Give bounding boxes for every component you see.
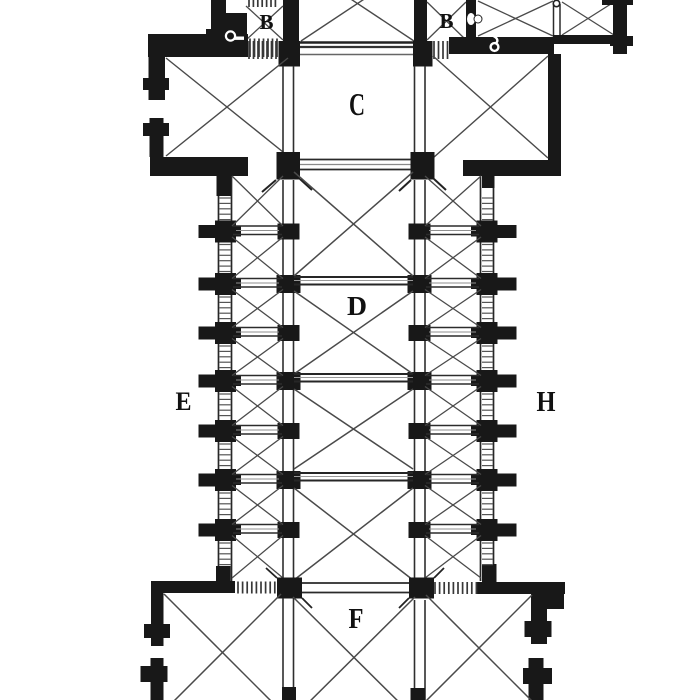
svg-text:C: C: [349, 86, 365, 122]
svg-text:B: B: [260, 10, 274, 34]
svg-text:B: B: [440, 9, 454, 33]
svg-text:F: F: [349, 603, 364, 635]
svg-text:D: D: [347, 291, 367, 321]
svg-text:H: H: [537, 387, 556, 418]
svg-text:E: E: [176, 387, 192, 416]
